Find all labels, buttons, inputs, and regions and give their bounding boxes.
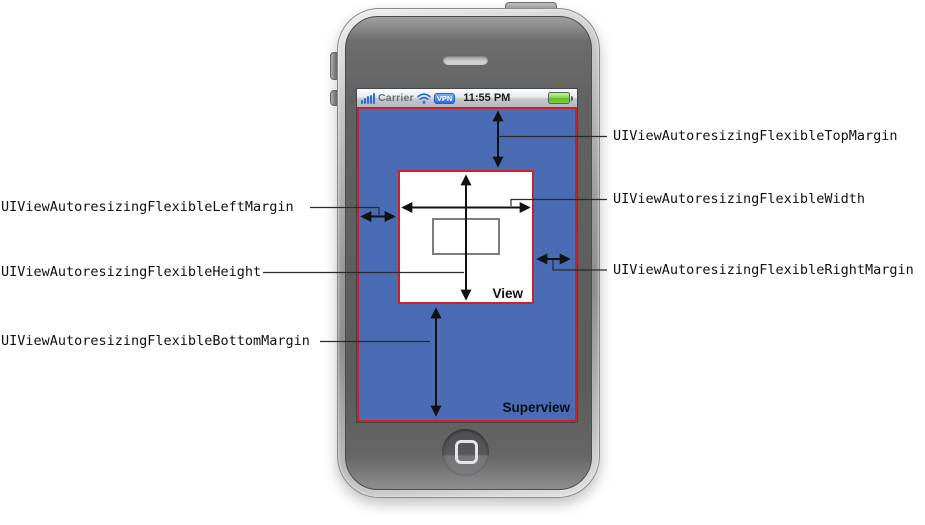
status-bar-clock: 11:55 PM (463, 92, 510, 104)
label-flexible-right-margin: UIViewAutoresizingFlexibleRightMargin (613, 263, 914, 278)
wifi-icon (417, 93, 431, 104)
view-label: View (492, 286, 523, 301)
signal-bars-icon (361, 93, 375, 104)
battery-icon (548, 92, 570, 104)
label-flexible-top-margin: UIViewAutoresizingFlexibleTopMargin (613, 129, 897, 144)
superview-label: Superview (502, 400, 570, 415)
label-flexible-left-margin: UIViewAutoresizingFlexibleLeftMargin (1, 200, 294, 215)
home-button (442, 429, 489, 476)
vpn-badge: VPN (434, 93, 455, 104)
label-flexible-width: UIViewAutoresizingFlexibleWidth (613, 192, 865, 207)
earpiece-speaker (443, 55, 488, 65)
home-button-square-icon (455, 440, 478, 464)
figure-autoresizing-masks: Carrier VPN 11:55 PM Superview View UIVi… (0, 0, 925, 525)
view-content-rect (432, 218, 500, 255)
carrier-label: Carrier (378, 92, 414, 104)
label-flexible-bottom-margin: UIViewAutoresizingFlexibleBottomMargin (1, 334, 310, 349)
label-flexible-height: UIViewAutoresizingFlexibleHeight (1, 265, 261, 280)
status-bar: Carrier VPN 11:55 PM (357, 89, 577, 107)
